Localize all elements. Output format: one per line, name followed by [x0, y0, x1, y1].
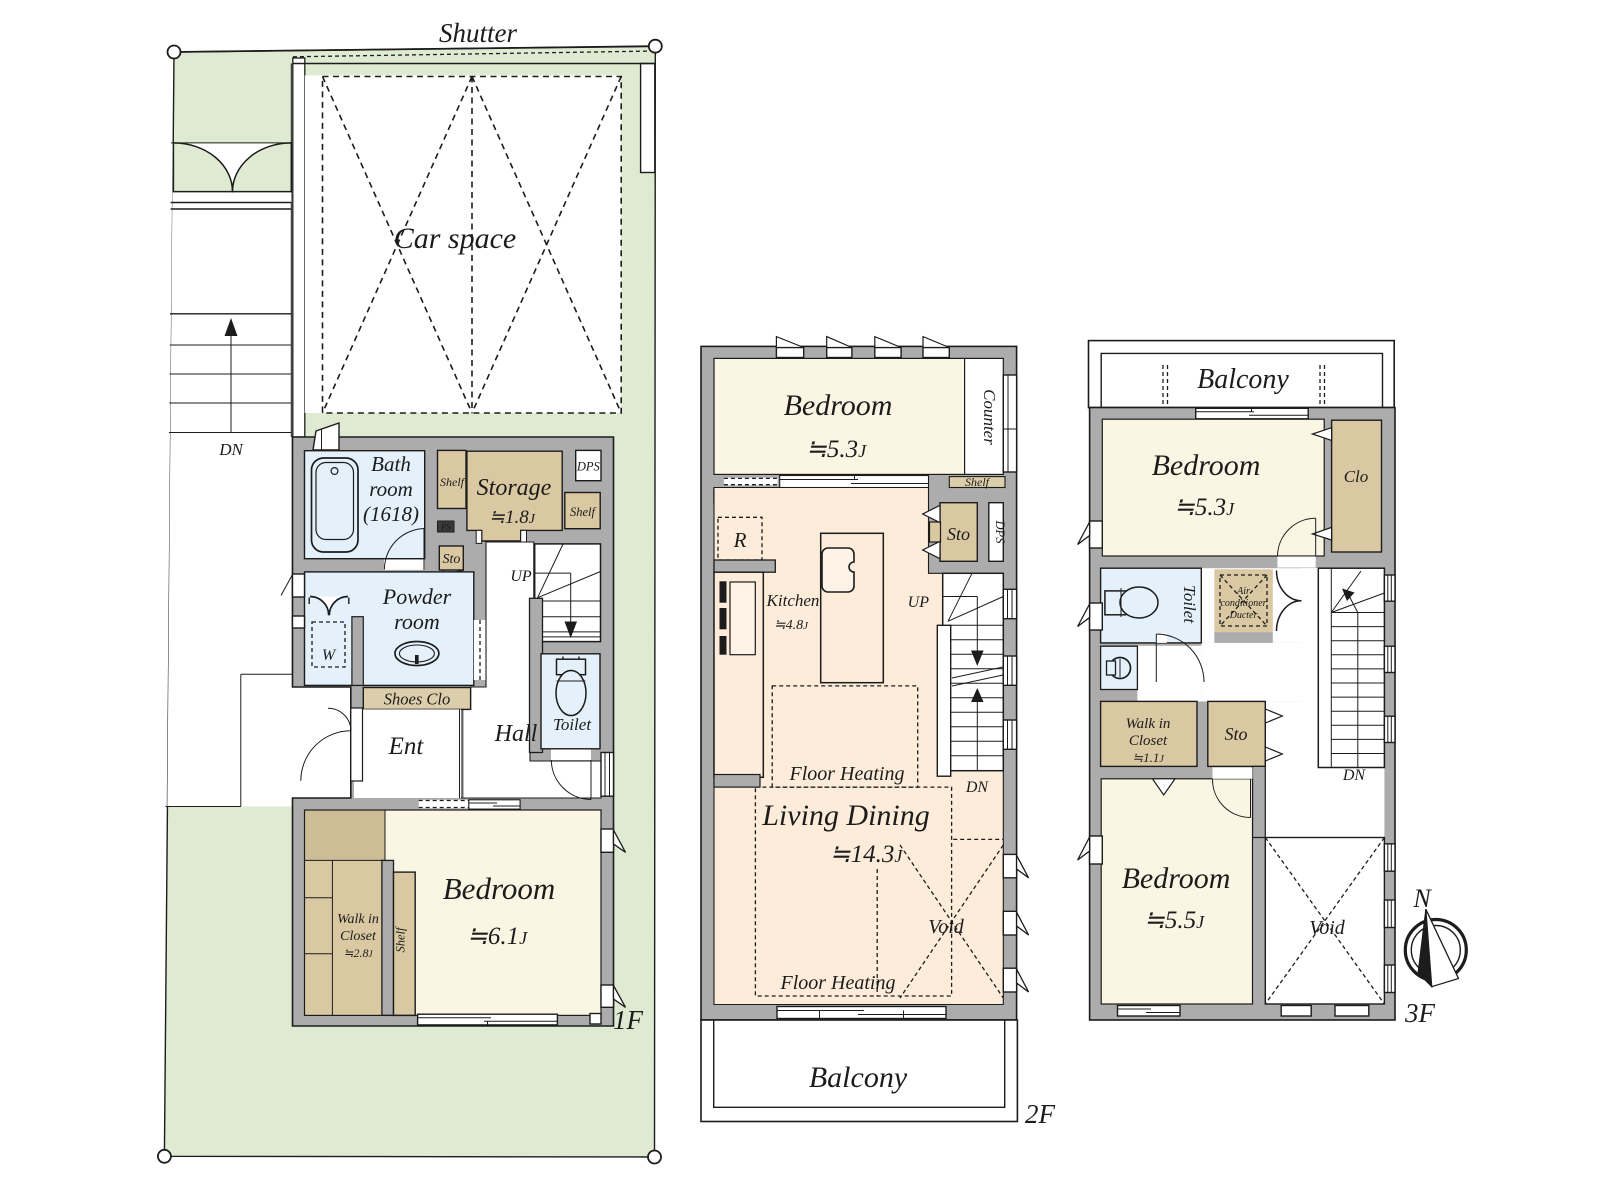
- svg-text:conditioner: conditioner: [1220, 598, 1266, 609]
- svg-text:≒4.8J: ≒4.8J: [774, 618, 809, 633]
- svg-text:Shoes Clo: Shoes Clo: [384, 690, 450, 709]
- svg-text:Bath: Bath: [371, 452, 411, 476]
- svg-text:room: room: [369, 477, 413, 501]
- svg-text:Sto: Sto: [947, 524, 970, 544]
- svg-text:≒2.8J: ≒2.8J: [343, 946, 373, 960]
- svg-text:Walk in: Walk in: [1126, 716, 1171, 732]
- svg-text:1F: 1F: [613, 1005, 644, 1035]
- svg-text:≒5.3J: ≒5.3J: [1174, 494, 1235, 521]
- svg-text:≒5.3J: ≒5.3J: [806, 436, 867, 463]
- svg-text:≒1.8J: ≒1.8J: [489, 507, 536, 528]
- svg-text:Sto: Sto: [1224, 724, 1247, 744]
- svg-text:room: room: [394, 609, 440, 634]
- svg-text:2F: 2F: [1025, 1099, 1056, 1129]
- svg-text:Shelf: Shelf: [440, 475, 466, 489]
- svg-text:R: R: [733, 528, 747, 552]
- svg-text:≒6.1J: ≒6.1J: [467, 923, 528, 950]
- svg-text:Powder: Powder: [382, 584, 452, 609]
- svg-text:DPS: DPS: [576, 460, 601, 474]
- svg-text:Walk in: Walk in: [337, 912, 379, 927]
- svg-text:UP: UP: [510, 568, 532, 585]
- svg-text:3F: 3F: [1404, 998, 1436, 1028]
- svg-text:≒5.5J: ≒5.5J: [1144, 907, 1205, 934]
- svg-text:Air: Air: [1236, 586, 1250, 597]
- svg-text:Shelf: Shelf: [965, 475, 991, 489]
- svg-text:Shelf: Shelf: [570, 505, 597, 519]
- svg-text:DPS: DPS: [993, 520, 1007, 545]
- svg-text:Void: Void: [1309, 917, 1346, 939]
- svg-text:Bedroom: Bedroom: [784, 389, 893, 422]
- svg-text:Storage: Storage: [477, 475, 552, 501]
- svg-text:Kitchen: Kitchen: [766, 591, 820, 610]
- svg-text:Toilet: Toilet: [1180, 585, 1199, 624]
- svg-text:≒14.3J: ≒14.3J: [830, 841, 904, 868]
- svg-text:Bedroom: Bedroom: [1152, 449, 1261, 482]
- svg-text:Void: Void: [928, 916, 965, 938]
- svg-text:Ent: Ent: [388, 733, 425, 760]
- svg-text:Ducter: Ducter: [1229, 610, 1258, 621]
- svg-text:UP: UP: [908, 594, 930, 611]
- svg-text:PS: PS: [440, 522, 451, 532]
- svg-text:DN: DN: [218, 440, 244, 459]
- svg-text:Sto: Sto: [443, 552, 461, 567]
- svg-text:W: W: [322, 647, 337, 664]
- svg-text:Shutter: Shutter: [439, 18, 517, 48]
- svg-text:Car space: Car space: [394, 222, 517, 255]
- svg-text:DN: DN: [965, 779, 990, 796]
- svg-text:Closet: Closet: [1129, 733, 1168, 749]
- svg-text:Bedroom: Bedroom: [443, 871, 556, 906]
- svg-text:Floor Heating: Floor Heating: [780, 972, 896, 994]
- svg-text:Bedroom: Bedroom: [1122, 862, 1231, 895]
- svg-text:Toilet: Toilet: [553, 715, 592, 734]
- svg-text:N: N: [1412, 884, 1432, 913]
- svg-text:DN: DN: [1342, 767, 1367, 784]
- svg-text:Shelf: Shelf: [394, 926, 408, 953]
- svg-text:Hall: Hall: [494, 721, 538, 747]
- svg-text:Counter: Counter: [980, 389, 999, 445]
- svg-text:Balcony: Balcony: [1197, 364, 1289, 395]
- svg-text:Living Dining: Living Dining: [761, 799, 930, 832]
- svg-text:(1618): (1618): [363, 502, 419, 526]
- svg-text:Balcony: Balcony: [809, 1061, 908, 1094]
- svg-text:Closet: Closet: [340, 929, 377, 944]
- svg-text:Floor Heating: Floor Heating: [789, 763, 905, 785]
- svg-text:Clo: Clo: [1344, 467, 1369, 486]
